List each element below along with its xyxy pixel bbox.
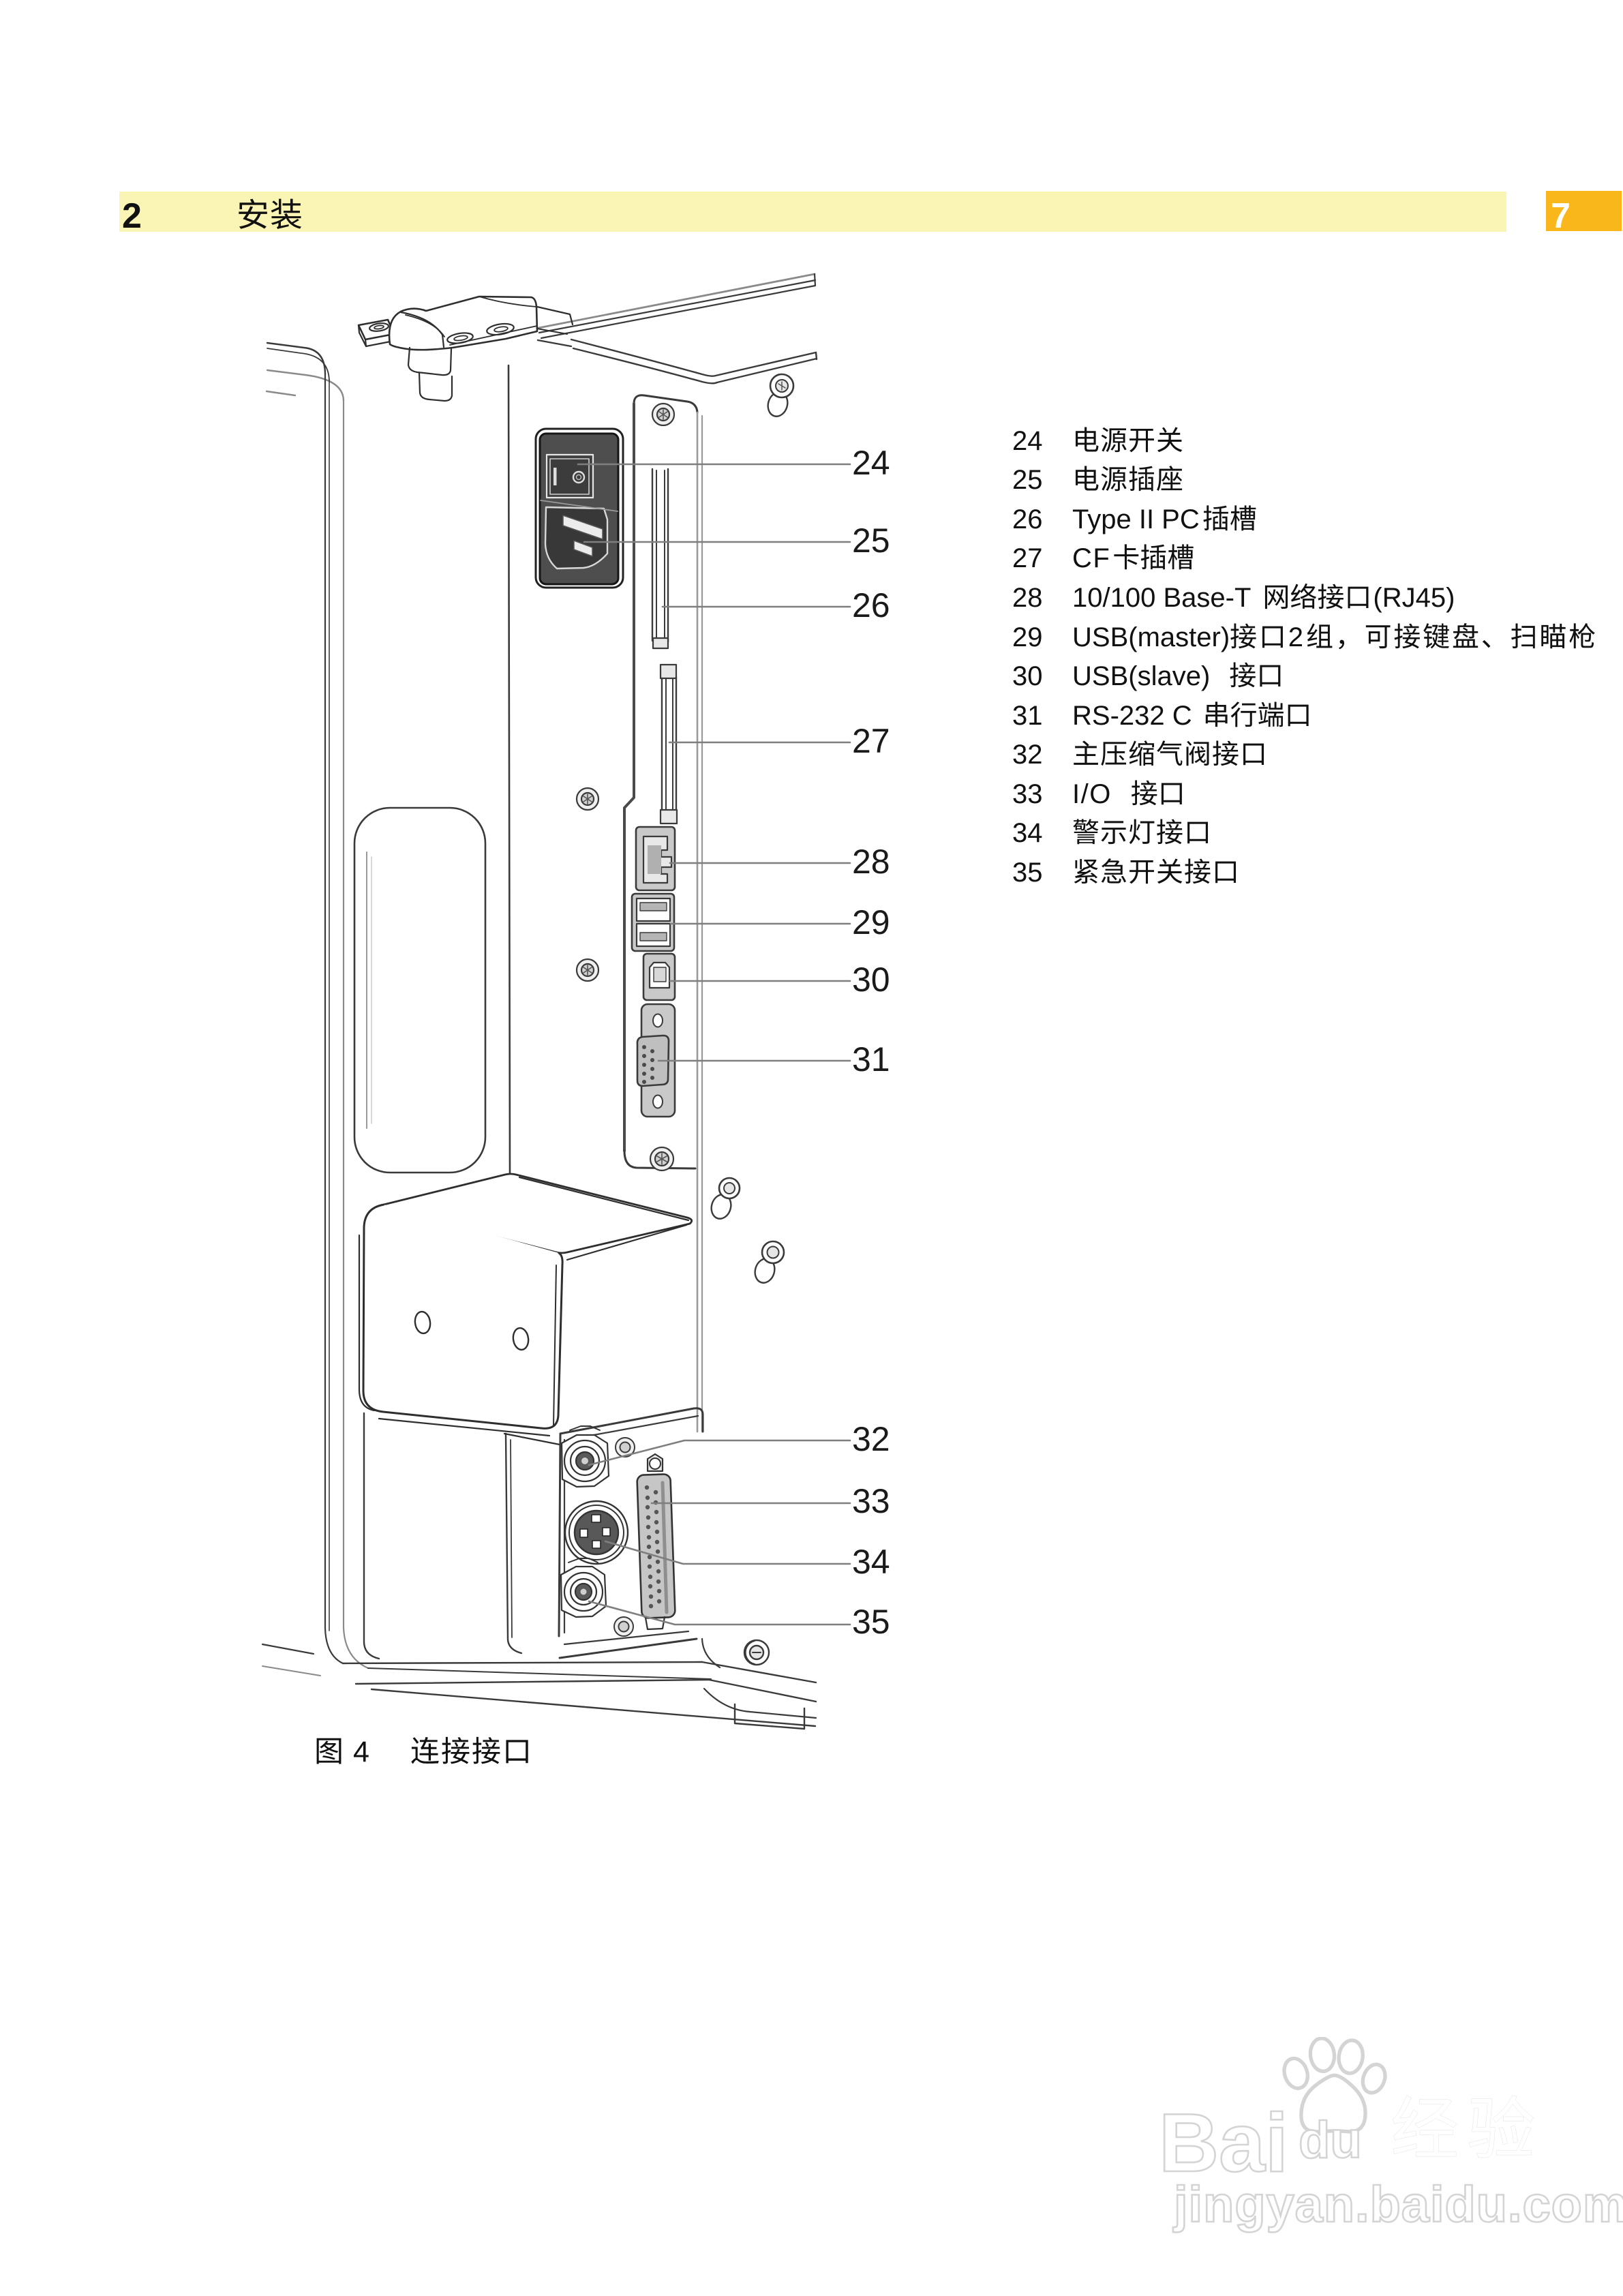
svg-text:33: 33 (852, 1482, 890, 1520)
svg-text:31: 31 (852, 1040, 890, 1078)
svg-text:35: 35 (852, 1603, 890, 1641)
svg-text:24: 24 (852, 444, 890, 482)
svg-text:25: 25 (852, 522, 890, 560)
svg-text:28: 28 (852, 843, 890, 881)
svg-text:32: 32 (852, 1420, 890, 1458)
svg-text:26: 26 (852, 586, 890, 624)
svg-text:29: 29 (852, 903, 890, 941)
svg-text:34: 34 (852, 1543, 890, 1581)
svg-text:27: 27 (852, 722, 890, 760)
svg-text:30: 30 (852, 961, 890, 999)
